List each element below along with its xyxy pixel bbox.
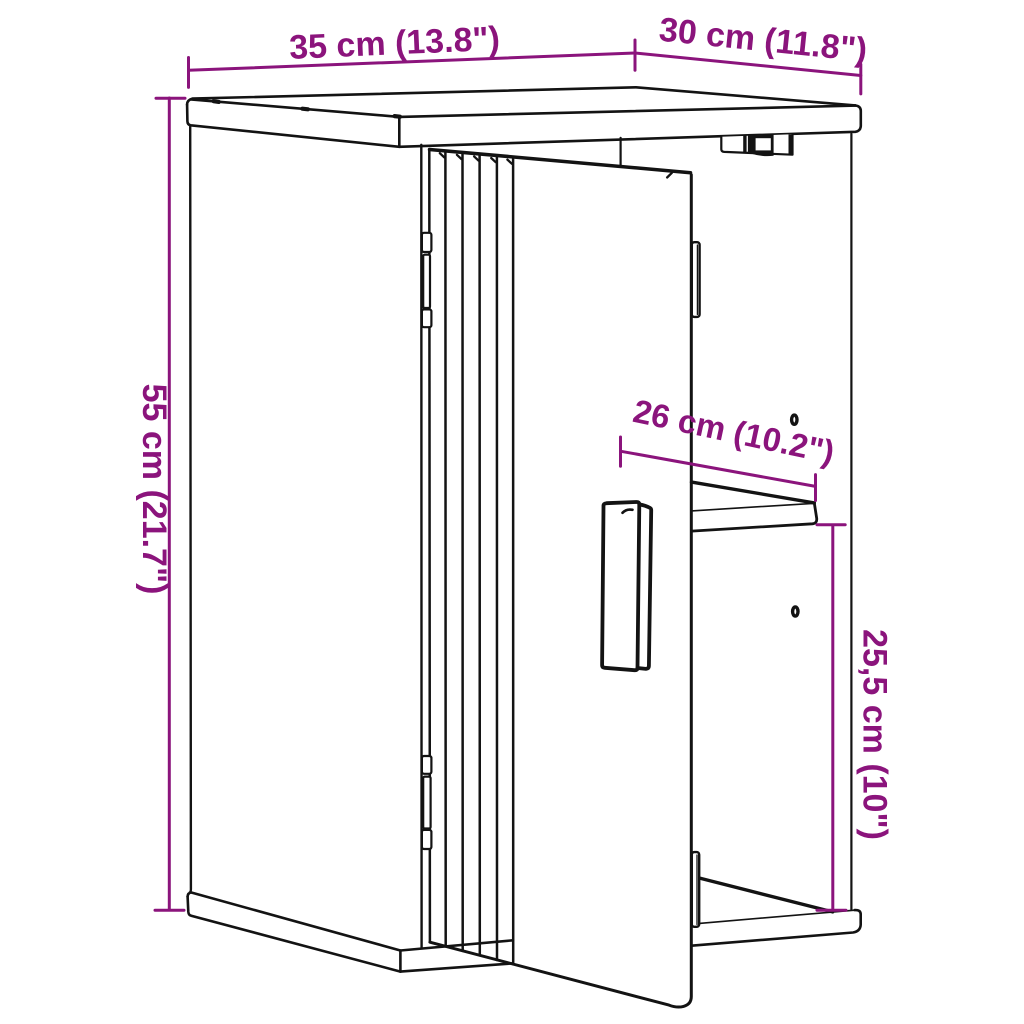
svg-text:55 cm (21.7"): 55 cm (21.7") <box>135 384 173 595</box>
svg-text:25,5 cm (10"): 25,5 cm (10") <box>856 629 894 840</box>
